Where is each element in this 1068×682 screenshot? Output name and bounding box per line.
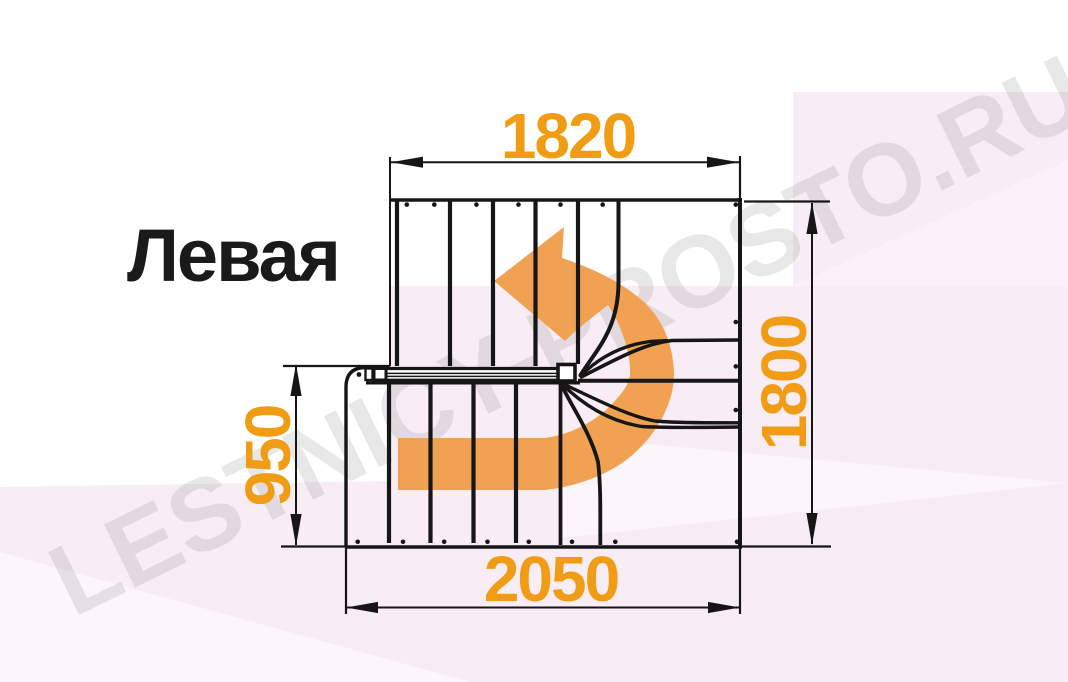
svg-text:950: 950 <box>232 406 304 507</box>
svg-text:1820: 1820 <box>501 100 635 172</box>
svg-text:Левая: Левая <box>127 214 339 297</box>
svg-text:1800: 1800 <box>748 316 820 450</box>
svg-text:2050: 2050 <box>484 543 618 615</box>
